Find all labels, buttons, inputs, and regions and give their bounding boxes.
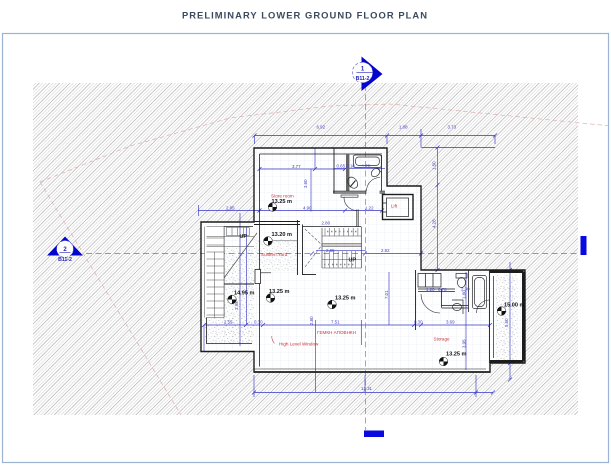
svg-text:2.80: 2.80 [322,221,331,226]
svg-text:12.31: 12.31 [361,386,373,391]
svg-text:5.60: 5.60 [504,318,509,327]
svg-text:ГЕМКН АПОВНКН: ГЕМКН АПОВНКН [317,330,356,335]
svg-text:2.95: 2.95 [226,206,235,211]
svg-text:3.69: 3.69 [446,320,455,325]
svg-text:13.20 m: 13.20 m [272,232,293,238]
svg-text:B11-2: B11-2 [356,76,370,82]
svg-text:3.73: 3.73 [448,125,457,130]
svg-text:13.25 m: 13.25 m [335,296,356,302]
svg-text:PRELIMINARY LOWER GROUND FLOOR: PRELIMINARY LOWER GROUND FLOOR PLAN [182,10,428,21]
svg-text:1.50: 1.50 [432,161,437,170]
svg-text:13.25 m: 13.25 m [446,352,467,358]
svg-text:3.95: 3.95 [462,339,467,348]
svg-text:0.30: 0.30 [414,320,423,325]
svg-text:1.20: 1.20 [362,163,371,168]
svg-text:1.80: 1.80 [462,290,467,299]
svg-text:1.20: 1.20 [426,287,435,292]
svg-text:0.65 0.18: 0.65 0.18 [337,163,356,168]
svg-text:Lift: Lift [391,204,398,209]
svg-text:3.60: 3.60 [303,179,308,188]
svg-text:2.92: 2.92 [381,248,390,253]
svg-text:Sunken Yard: Sunken Yard [261,252,288,257]
svg-text:UP: UP [240,234,248,240]
svg-text:2.80: 2.80 [309,316,314,325]
svg-text:Store room: Store room [271,194,294,199]
svg-text:6.92: 6.92 [317,125,326,130]
svg-text:3.77: 3.77 [292,164,301,169]
svg-text:UP: UP [349,258,357,264]
svg-text:2.55: 2.55 [224,320,233,325]
svg-text:0.30: 0.30 [254,320,263,325]
svg-text:1.08: 1.08 [399,125,408,130]
svg-text:4.90: 4.90 [303,206,312,211]
svg-text:0.78: 0.78 [438,287,447,292]
svg-text:1.22: 1.22 [365,206,374,211]
svg-text:4.28: 4.28 [432,219,437,228]
svg-text:14.95 m: 14.95 m [234,291,255,297]
svg-text:Storage: Storage [434,337,451,342]
svg-text:B11-2: B11-2 [58,257,72,263]
svg-text:15.00 m: 15.00 m [504,303,525,309]
svg-text:High Level Window: High Level Window [279,342,319,347]
svg-text:2.85: 2.85 [326,248,335,253]
svg-text:7.01: 7.01 [384,290,389,299]
svg-text:7.51: 7.51 [331,320,340,325]
